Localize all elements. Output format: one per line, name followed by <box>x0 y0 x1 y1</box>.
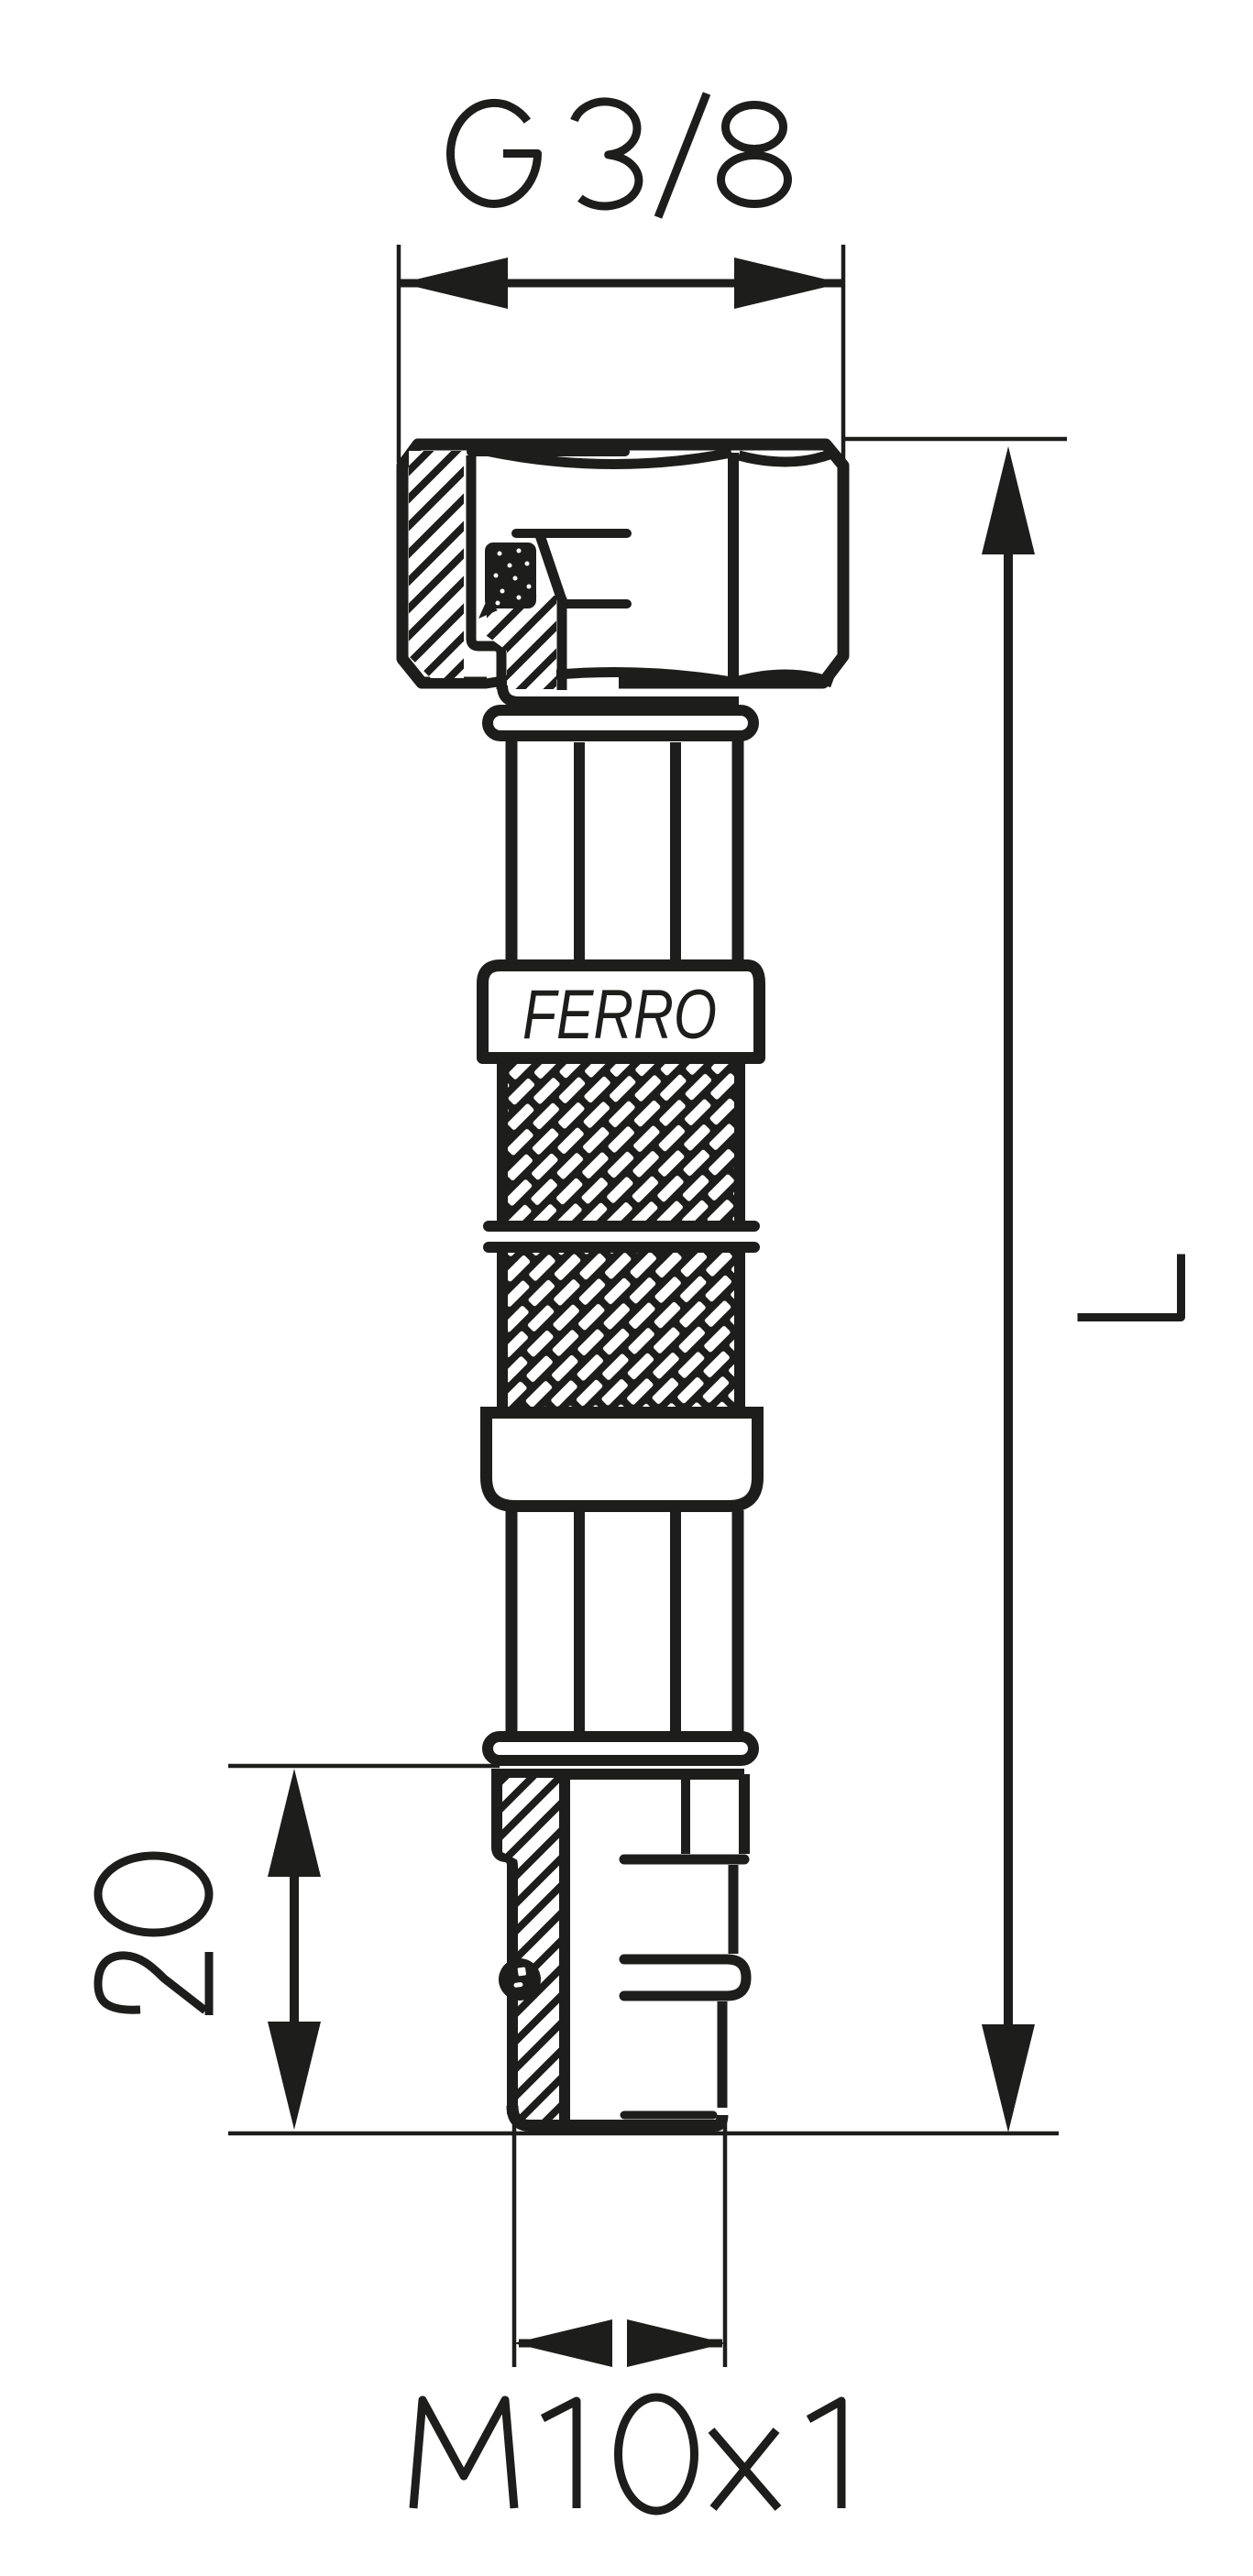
svg-text:FERRO: FERRO <box>522 976 717 1054</box>
